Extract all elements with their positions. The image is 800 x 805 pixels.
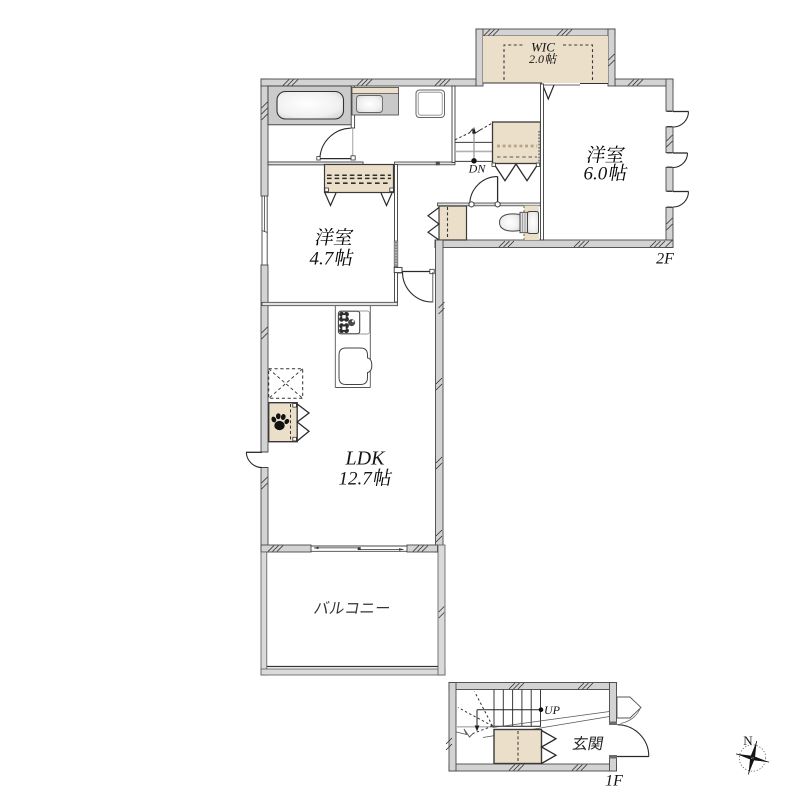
svg-text:6.0: 6.0 — [584, 164, 608, 185]
svg-text:N: N — [743, 733, 753, 748]
svg-text:LDK: LDK — [345, 448, 387, 470]
svg-text:2.0: 2.0 — [529, 52, 544, 66]
svg-text:2F: 2F — [656, 251, 674, 268]
svg-text:DN: DN — [468, 162, 487, 176]
svg-text:12.7: 12.7 — [339, 469, 374, 490]
svg-text:1F: 1F — [605, 773, 623, 790]
svg-text:UP: UP — [544, 703, 561, 717]
svg-text:4.7: 4.7 — [310, 249, 335, 270]
